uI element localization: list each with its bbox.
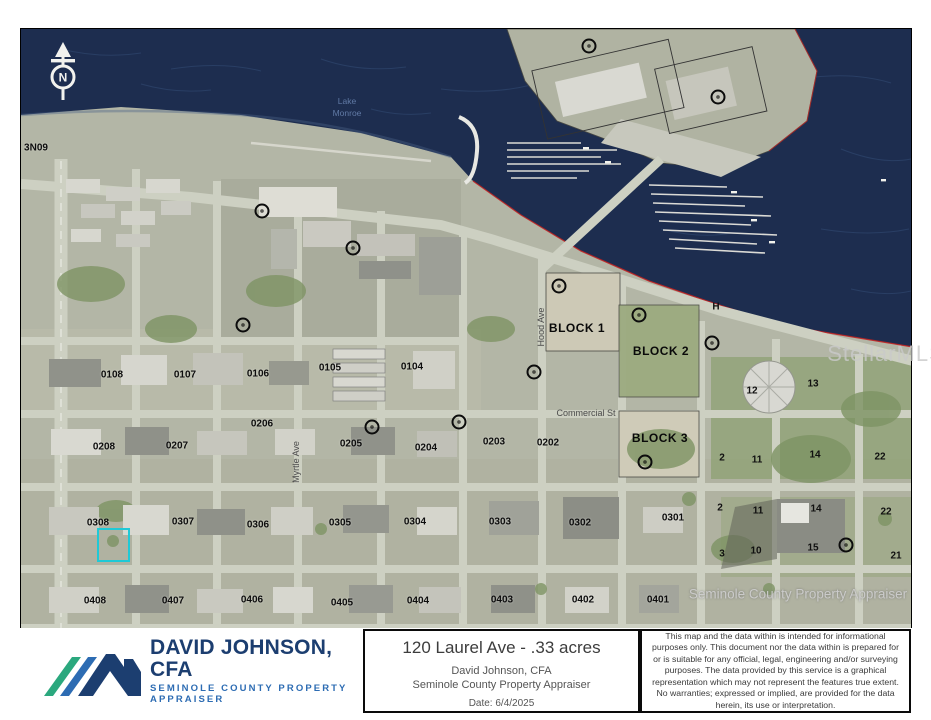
disclaimer-box: This map and the data within is intended… (640, 629, 911, 713)
north-arrow-icon: N (46, 40, 80, 104)
appraiser-logo-text: DAVID JOHNSON, CFA SEMINOLE COUNTY PROPE… (150, 637, 362, 705)
appraiser-logo-icon (40, 644, 142, 698)
logo-subtitle: SEMINOLE COUNTY PROPERTY APPRAISER (150, 683, 362, 705)
aerial-imagery (21, 29, 912, 630)
map-date: Date: 6/4/2025 (365, 698, 638, 709)
author-office: Seminole County Property Appraiser (413, 679, 591, 691)
appraiser-logo: DAVID JOHNSON, CFA SEMINOLE COUNTY PROPE… (40, 638, 362, 704)
logo-title: DAVID JOHNSON, CFA (150, 637, 362, 681)
author-name: David Johnson, CFA (451, 665, 551, 677)
map-title: 120 Laurel Ave - .33 acres (365, 638, 638, 658)
aerial-map (20, 28, 912, 630)
disclaimer-text: This map and the data within is intended… (650, 631, 901, 711)
map-page: N 3N09LakeMonroe010801070106010501040208… (0, 0, 931, 720)
subject-parcel-highlight (97, 528, 130, 562)
north-letter: N (59, 71, 68, 85)
map-author: David Johnson, CFA Seminole County Prope… (365, 664, 638, 693)
map-title-box: 120 Laurel Ave - .33 acres David Johnson… (363, 629, 640, 713)
footer: DAVID JOHNSON, CFA SEMINOLE COUNTY PROPE… (0, 628, 931, 720)
